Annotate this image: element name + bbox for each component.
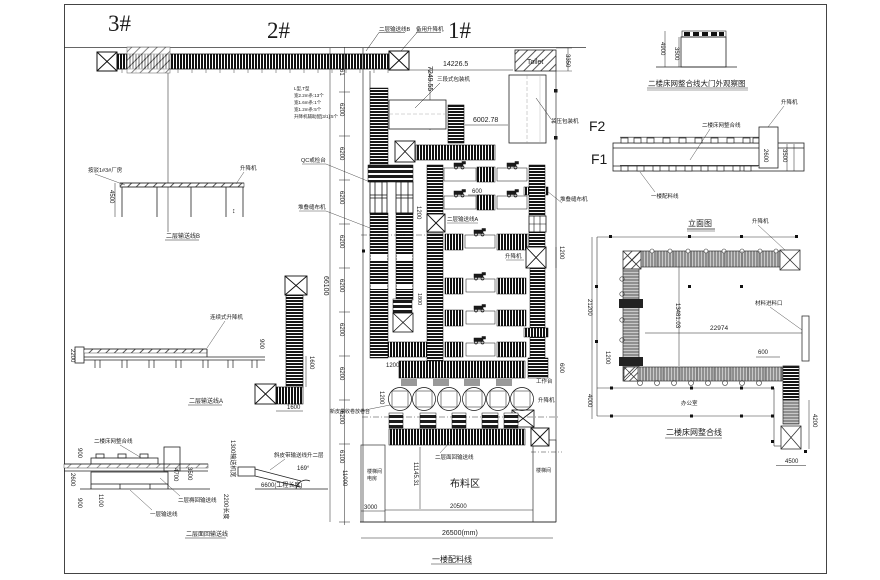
svg-text:3500: 3500 <box>781 149 787 163</box>
svg-text:二楼床网整合线: 二楼床网整合线 <box>94 437 133 445</box>
svg-text:900: 900 <box>258 339 264 350</box>
svg-text:600: 600 <box>472 189 483 195</box>
svg-text:2#: 2# <box>267 18 291 43</box>
svg-text:2600: 2600 <box>69 473 75 487</box>
svg-text:F1: F1 <box>591 151 608 167</box>
svg-text:900: 900 <box>76 498 82 509</box>
svg-text:3000: 3000 <box>364 505 378 511</box>
svg-text:二层输送线B: 二层输送线B <box>379 25 411 33</box>
svg-text:600: 600 <box>558 363 564 374</box>
svg-text:3500: 3500 <box>673 47 679 61</box>
svg-text:6200: 6200 <box>338 367 344 381</box>
svg-text:二层输送线A: 二层输送线A <box>447 215 479 223</box>
svg-text:二层面回输送线: 二层面回输送线 <box>435 453 474 461</box>
svg-text:升降机: 升降机 <box>240 164 257 172</box>
svg-text:升降机: 升降机 <box>538 396 555 404</box>
svg-text:袋压包装机: 袋压包装机 <box>551 117 579 125</box>
svg-text:立面图: 立面图 <box>688 218 712 228</box>
svg-text:3500: 3500 <box>186 467 192 481</box>
svg-text:66100: 66100 <box>322 276 329 296</box>
svg-text:14226.5: 14226.5 <box>443 61 468 68</box>
svg-text:升降机: 升降机 <box>752 217 769 225</box>
svg-text:L型,T型: L型,T型 <box>294 85 310 91</box>
svg-text:1600: 1600 <box>308 356 314 370</box>
svg-text:20500: 20500 <box>450 504 467 510</box>
svg-text:宽1.6m条:1个: 宽1.6m条:1个 <box>294 99 322 106</box>
svg-text:二层面回输送线: 二层面回输送线 <box>186 530 228 538</box>
svg-text:600: 600 <box>758 350 769 356</box>
svg-text:7249.55: 7249.55 <box>426 66 433 91</box>
svg-text:6200: 6200 <box>338 235 344 249</box>
svg-text:1200: 1200 <box>386 363 400 369</box>
svg-text:6200: 6200 <box>338 323 344 337</box>
svg-text:一楼配料线: 一楼配料线 <box>651 192 679 200</box>
svg-text:宽2.2m条:13个: 宽2.2m条:13个 <box>294 92 324 99</box>
svg-text:1#: 1# <box>448 18 472 43</box>
svg-text:按驳1#3#厂房: 按驳1#3#厂房 <box>88 166 123 174</box>
svg-text:6200: 6200 <box>338 147 344 161</box>
svg-text:楼梯间: 楼梯间 <box>367 468 382 475</box>
svg-text:二楼床网整合线大门外观察图: 二楼床网整合线大门外观察图 <box>648 78 746 88</box>
svg-text:169°: 169° <box>297 466 310 472</box>
svg-text:6200: 6200 <box>338 279 344 293</box>
svg-text:三段式包装机: 三段式包装机 <box>437 75 471 83</box>
svg-text:二层输送线A: 二层输送线A <box>189 397 223 405</box>
svg-text:工作台: 工作台 <box>536 377 553 385</box>
svg-text:Toilet: Toilet <box>527 59 543 66</box>
svg-text:21200: 21200 <box>586 299 592 316</box>
svg-text:一楼配料线: 一楼配料线 <box>432 554 472 564</box>
svg-text:2200长度: 2200长度 <box>222 494 230 519</box>
svg-text:楼梯间: 楼梯间 <box>536 467 551 474</box>
svg-text:一层输送线: 一层输送线 <box>150 510 178 518</box>
svg-text:堆叠缝布机: 堆叠缝布机 <box>298 203 326 211</box>
svg-text:11145.31: 11145.31 <box>412 462 418 487</box>
svg-text:备用升降机: 备用升降机 <box>416 25 444 33</box>
svg-text:F2: F2 <box>589 118 606 134</box>
svg-text:22974: 22974 <box>710 325 728 332</box>
svg-text:1200: 1200 <box>378 391 384 405</box>
svg-text:升降机辅助配[3/1]:5个: 升降机辅助配[3/1]:5个 <box>294 113 339 120</box>
svg-text:1800: 1800 <box>416 293 422 305</box>
svg-text:4200: 4200 <box>811 414 817 428</box>
svg-text:材料进料口: 材料进料口 <box>755 299 783 307</box>
svg-text:6200: 6200 <box>338 103 344 117</box>
svg-text:4500: 4500 <box>108 190 114 204</box>
svg-text:1100: 1100 <box>97 494 103 508</box>
svg-text:新皮带收卷放卷台: 新皮带收卷放卷台 <box>330 408 370 415</box>
svg-text:3350: 3350 <box>564 54 570 68</box>
svg-text:办公室: 办公室 <box>681 399 698 407</box>
svg-text:1200: 1200 <box>558 246 564 260</box>
svg-text:连续式升降机: 连续式升降机 <box>210 313 244 321</box>
svg-text:斜皮带输送线升二层: 斜皮带输送线升二层 <box>274 451 324 459</box>
svg-text:二楼床网整合线: 二楼床网整合线 <box>702 121 741 129</box>
svg-text:4500: 4500 <box>785 459 799 465</box>
svg-text:3#: 3# <box>108 11 132 36</box>
svg-text:4700: 4700 <box>172 468 178 482</box>
svg-text:6200: 6200 <box>338 191 344 205</box>
svg-text:11000: 11000 <box>341 470 347 487</box>
svg-text:升降机: 升降机 <box>505 252 522 260</box>
svg-text:2200: 2200 <box>69 349 75 363</box>
svg-text:二楼床网整合线: 二楼床网整合线 <box>666 427 722 437</box>
svg-text:26500(mm): 26500(mm) <box>442 530 478 537</box>
svg-text:2600: 2600 <box>762 149 768 163</box>
svg-text:二层褥回输送线: 二层褥回输送线 <box>178 496 217 504</box>
svg-text:电房: 电房 <box>367 475 377 482</box>
svg-text:6100: 6100 <box>338 450 344 464</box>
svg-text:61: 61 <box>338 69 344 76</box>
svg-text:升降机: 升降机 <box>781 98 798 106</box>
svg-text:1200: 1200 <box>604 351 610 365</box>
svg-text:4900: 4900 <box>659 42 665 56</box>
svg-text:6600(工程长度): 6600(工程长度) <box>261 481 302 489</box>
svg-text:二层输送线B: 二层输送线B <box>166 232 200 240</box>
svg-text:堆叠缝布机: 堆叠缝布机 <box>560 195 588 203</box>
svg-text:6002.78: 6002.78 <box>473 117 498 124</box>
svg-text:900: 900 <box>76 448 82 459</box>
svg-text:4000: 4000 <box>586 394 592 408</box>
svg-text:宽1.2m条:5个: 宽1.2m条:5个 <box>294 106 322 113</box>
svg-text:1600: 1600 <box>287 405 301 411</box>
svg-text:1300输送机宽: 1300输送机宽 <box>229 440 237 477</box>
svg-text:QC或检台: QC或检台 <box>301 156 326 164</box>
svg-text:1200: 1200 <box>415 206 421 220</box>
svg-text:↕: ↕ <box>232 208 236 215</box>
svg-text:布料区: 布料区 <box>450 477 480 490</box>
